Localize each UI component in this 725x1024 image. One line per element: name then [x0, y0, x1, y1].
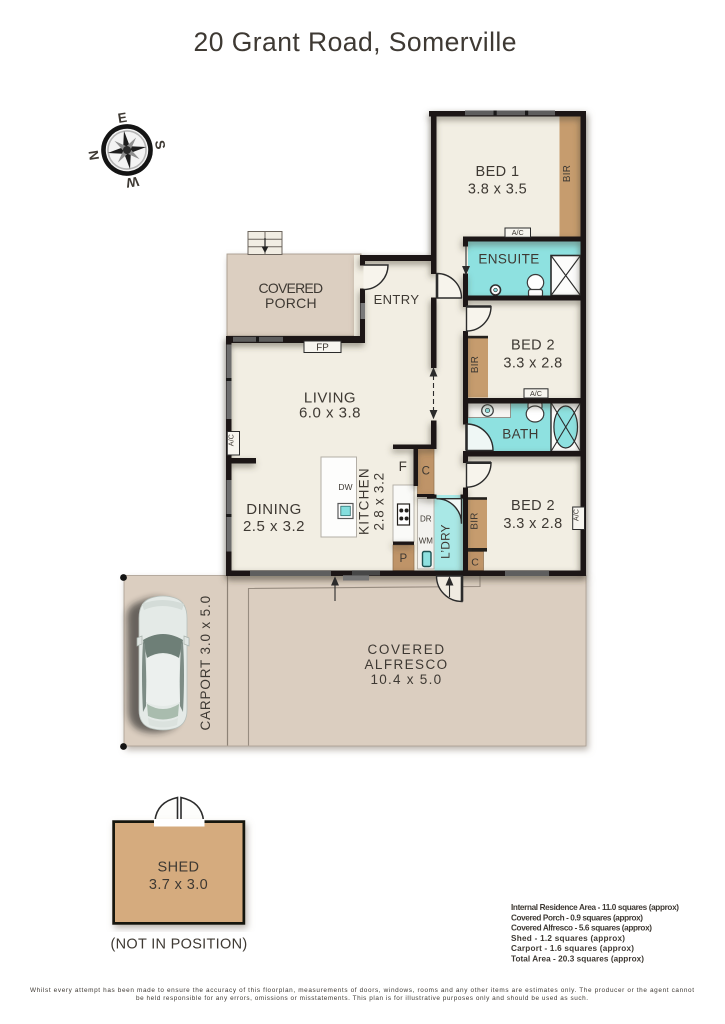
svg-text:PORCH: PORCH: [265, 295, 317, 311]
svg-text:3.7 x 3.0: 3.7 x 3.0: [149, 877, 208, 893]
svg-text:(NOT IN POSITION): (NOT IN POSITION): [111, 937, 248, 953]
svg-text:BED 2: BED 2: [511, 498, 555, 514]
svg-text:Shed - 1.2 squares (approx): Shed - 1.2 squares (approx): [511, 934, 625, 943]
svg-text:C: C: [422, 466, 430, 478]
svg-text:F: F: [399, 459, 408, 474]
svg-text:DINING: DINING: [246, 501, 302, 518]
svg-text:BED 1: BED 1: [476, 164, 520, 180]
svg-text:A/C: A/C: [512, 228, 524, 237]
svg-text:A/C: A/C: [226, 434, 235, 446]
svg-text:BIR: BIR: [562, 165, 573, 182]
svg-text:FP: FP: [316, 342, 329, 353]
svg-text:DW: DW: [338, 482, 352, 492]
svg-text:3.8 x 3.5: 3.8 x 3.5: [468, 182, 527, 198]
svg-text:ENSUITE: ENSUITE: [478, 252, 539, 267]
svg-text:Total Area - 20.3 squares (app: Total Area - 20.3 squares (approx): [511, 955, 644, 964]
svg-text:20 Grant Road, Somerville: 20 Grant Road, Somerville: [194, 27, 517, 57]
svg-text:SHED: SHED: [158, 860, 200, 876]
svg-text:Carport - 1.6 squares (approx): Carport - 1.6 squares (approx): [511, 944, 634, 953]
svg-text:3.3 x 2.8: 3.3 x 2.8: [503, 516, 562, 532]
svg-text:Covered Alfresco - 5.6 squares: Covered Alfresco - 5.6 squares (approx): [511, 924, 652, 933]
svg-text:COVERED: COVERED: [259, 280, 324, 296]
svg-text:DR: DR: [420, 515, 432, 524]
svg-text:ALFRESCO: ALFRESCO: [365, 657, 448, 672]
svg-text:W: W: [125, 174, 140, 191]
svg-text:BIR: BIR: [470, 356, 481, 373]
svg-text:2.5 x 3.2: 2.5 x 3.2: [243, 518, 305, 535]
svg-text:3.3 x 2.8: 3.3 x 2.8: [503, 356, 562, 372]
svg-text:Whilst every attempt has been: Whilst every attempt has been made to en…: [30, 987, 694, 994]
svg-text:BED 2: BED 2: [511, 338, 555, 354]
svg-text:Internal Residence Area - 11.0: Internal Residence Area - 11.0 squares (…: [511, 903, 679, 912]
svg-text:KITCHEN: KITCHEN: [357, 468, 372, 535]
svg-text:10.4 x 5.0: 10.4 x 5.0: [371, 672, 442, 687]
svg-text:ENTRY: ENTRY: [374, 292, 420, 307]
svg-text:WM: WM: [419, 537, 434, 546]
svg-text:CARPORT 3.0 x 5.0: CARPORT 3.0 x 5.0: [198, 596, 213, 731]
svg-text:C: C: [471, 557, 479, 569]
svg-text:6.0 x 3.8: 6.0 x 3.8: [299, 405, 361, 422]
svg-text:L’DRY: L’DRY: [439, 524, 453, 559]
svg-text:Covered Porch - 0.9 squares (a: Covered Porch - 0.9 squares (approx): [511, 913, 643, 922]
svg-text:BIR: BIR: [469, 512, 480, 529]
svg-text:BATH: BATH: [502, 427, 539, 442]
svg-text:2.8 x 3.2: 2.8 x 3.2: [372, 473, 387, 531]
svg-text:be held responsible for any er: be held responsible for any errors, omis…: [136, 995, 588, 1002]
svg-text:A/C: A/C: [572, 509, 581, 521]
svg-text:P: P: [399, 553, 407, 565]
svg-text:A/C: A/C: [530, 389, 542, 398]
svg-text:COVERED: COVERED: [368, 642, 445, 657]
